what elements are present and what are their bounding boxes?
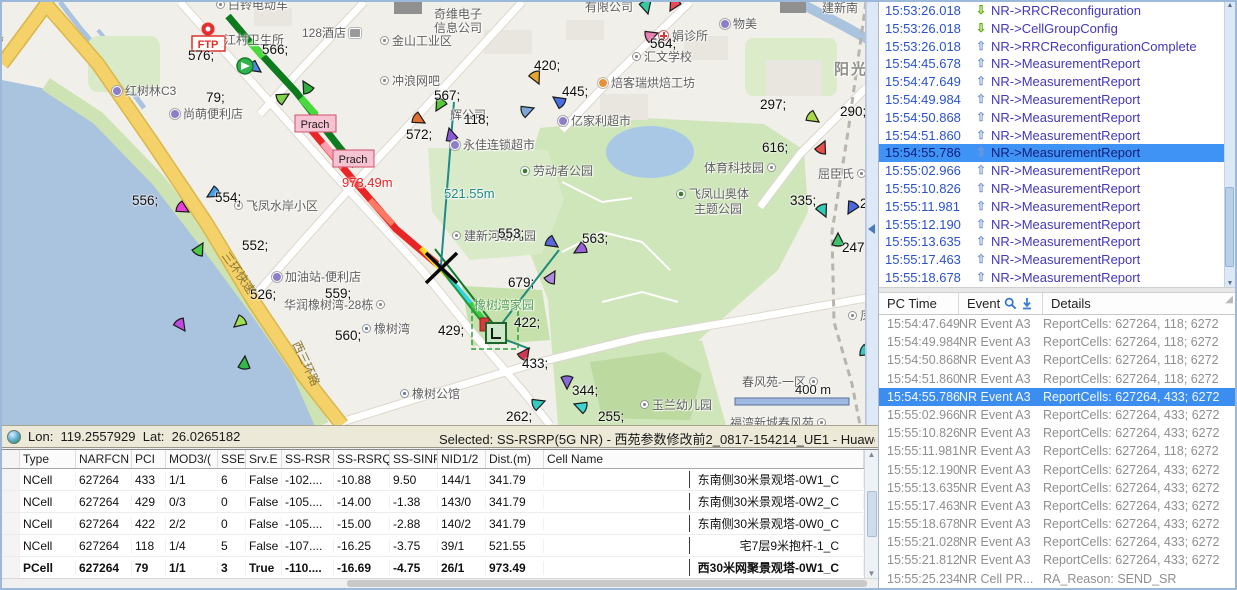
message-time: 15:54:55.786 <box>885 144 971 162</box>
cell-table-row[interactable]: PCell 627264 79 1/1 3 True -110.... -16.… <box>2 557 864 579</box>
message-time: 15:54:45.678 <box>885 55 971 73</box>
direction-arrow-icon <box>971 38 991 56</box>
pond <box>606 126 694 178</box>
event-time: 15:54:55.786 <box>879 388 959 406</box>
cell-type: NCell <box>20 539 76 553</box>
message-name: NR->MeasurementReport <box>991 198 1140 216</box>
scroll-up-icon[interactable]: ▲ <box>1227 2 1234 9</box>
cell-rsrp: -105.... <box>282 517 334 531</box>
direction-arrow-icon <box>971 198 991 216</box>
cell-rsrp: -102.... <box>282 473 334 487</box>
collapse-arrow-icon[interactable] <box>868 224 875 234</box>
event-time: 15:55:13.635 <box>879 479 959 497</box>
event-type: NR Event A3 <box>959 497 1043 515</box>
row-gutter-header <box>2 450 20 468</box>
event-details: ReportCells: 627264, 433; 6272 <box>1043 424 1236 442</box>
current-position-marker[interactable] <box>486 323 506 343</box>
signaling-message-row[interactable]: 15:55:17.463 NR->MeasurementReport <box>879 251 1225 269</box>
signaling-message-row[interactable]: 15:54:47.649 NR->MeasurementReport <box>879 73 1225 91</box>
col-details[interactable]: Details <box>1043 293 1236 314</box>
col-ss-rsrp[interactable]: SS-RSR <box>282 450 334 468</box>
direction-arrow-icon <box>971 109 991 127</box>
event-details: RA_Reason: SEND_SR <box>1043 570 1236 588</box>
message-name: NR->RRCReconfiguration <box>991 2 1141 20</box>
event-type: NR Event A3 <box>959 315 1043 333</box>
cell-type: NCell <box>20 473 76 487</box>
event-time: 15:55:11.981 <box>879 442 959 460</box>
direction-arrow-icon <box>971 127 991 145</box>
map-scale-bar <box>735 398 849 405</box>
signaling-message-row[interactable]: 15:54:51.860 NR->MeasurementReport <box>879 127 1225 145</box>
event-time: 15:54:50.868 <box>879 351 959 369</box>
signaling-message-row[interactable]: 15:54:55.786 NR->MeasurementReport <box>879 144 1225 162</box>
map-label-box <box>780 2 806 13</box>
scroll-down-icon[interactable]: ▼ <box>868 569 876 578</box>
prach-label: Prach <box>339 154 368 166</box>
col-mod3[interactable]: MOD3/( <box>166 450 218 468</box>
message-name: NR->MeasurementReport <box>991 216 1140 234</box>
col-pc-time[interactable]: PC Time <box>879 293 959 314</box>
event-time: 15:54:49.984 <box>879 333 959 351</box>
cell-ssb: 5 <box>218 539 246 553</box>
cell-mod3: 2/2 <box>166 517 218 531</box>
event-time: 15:55:10.826 <box>879 424 959 442</box>
event-row[interactable]: 15:55:10.826 NR Event A3 ReportCells: 62… <box>879 424 1236 442</box>
row-gutter <box>2 469 20 490</box>
cell-mod3: 1/4 <box>166 539 218 553</box>
cell-sinr: -3.75 <box>390 539 438 553</box>
event-details: ReportCells: 627264, 118; 6272 <box>1043 370 1236 388</box>
cell-name: 东南侧30米景观塔-0W0_C <box>544 515 864 532</box>
event-time: 15:54:47.649 <box>879 315 959 333</box>
cell-type: NCell <box>20 517 76 531</box>
selected-metric-info: Selected: SS-RSRP(5G NR) - 西苑参数修改前2_0817… <box>439 429 875 448</box>
signaling-message-row[interactable]: 15:54:49.984 NR->MeasurementReport <box>879 91 1225 109</box>
direction-arrow-icon <box>971 162 991 180</box>
col-ssb[interactable]: SSE <box>218 450 246 468</box>
row-gutter <box>2 491 20 512</box>
cell-pci: 422 <box>132 517 166 531</box>
message-name: NR->MeasurementReport <box>991 144 1140 162</box>
cell-dist: 341.79 <box>486 473 544 487</box>
cell-dist: 341.79 <box>486 517 544 531</box>
signaling-message-row[interactable]: 15:55:13.635 NR->MeasurementReport <box>879 233 1225 251</box>
cell-pci: 429 <box>132 495 166 509</box>
direction-arrow-icon <box>971 20 991 38</box>
message-time: 15:54:50.868 <box>885 109 971 127</box>
col-type[interactable]: Type <box>20 450 76 468</box>
cell-sinr: 9.50 <box>390 473 438 487</box>
direction-arrow-icon <box>971 269 991 287</box>
message-time: 15:55:12.190 <box>885 216 971 234</box>
cell-dist: 521.55 <box>486 539 544 553</box>
row-gutter <box>2 513 20 534</box>
cell-rsrq: -10.88 <box>334 473 390 487</box>
drive-test-app-window: FTP Prach Prach 白铃电动车江村卫生所128酒店金山工业区奇维电子… <box>0 0 1237 590</box>
scrollbar-thumb[interactable] <box>867 491 877 537</box>
col-dist[interactable]: Dist.(m) <box>486 450 544 468</box>
event-time: 15:55:18.678 <box>879 515 959 533</box>
event-row[interactable]: 15:54:51.860 NR Event A3 ReportCells: 62… <box>879 370 1236 388</box>
cell-nid: 26/1 <box>438 561 486 575</box>
signaling-message-row[interactable]: 15:55:11.981 NR->MeasurementReport <box>879 198 1225 216</box>
map-status-bar: Lon: 119.2557929 Lat: 26.0265182 Selecte… <box>2 425 878 448</box>
cell-table-row[interactable]: NCell 627264 118 1/4 5 False -107.... -1… <box>2 535 864 557</box>
message-name: NR->MeasurementReport <box>991 251 1140 269</box>
cell-measurement-table[interactable]: Type NARFCN PCI MOD3/( SSE Srv.E SS-RSR … <box>2 449 878 588</box>
message-time: 15:54:49.984 <box>885 91 971 109</box>
cell-mod3: 0/3 <box>166 495 218 509</box>
events-table-header: PC Time Event Details <box>879 293 1236 315</box>
signaling-message-row[interactable]: 15:54:50.868 NR->MeasurementReport <box>879 109 1225 127</box>
signaling-message-list[interactable]: 15:53:26.018 NR->RRCReconfiguration 15:5… <box>879 2 1225 287</box>
message-name: NR->MeasurementReport <box>991 233 1140 251</box>
col-srv-ev[interactable]: Srv.E <box>246 450 282 468</box>
cell-rsrq: -16.69 <box>334 561 390 575</box>
event-time: 15:55:25.234 <box>879 570 959 588</box>
message-name: NR->MeasurementReport <box>991 162 1140 180</box>
vertical-splitter[interactable] <box>866 2 878 425</box>
message-time: 15:54:47.649 <box>885 73 971 91</box>
cell-narfcn: 627264 <box>76 539 132 553</box>
signaling-message-row[interactable]: 15:53:26.018 NR->RRCReconfigurationCompl… <box>879 38 1225 56</box>
event-type: NR Event A3 <box>959 388 1043 406</box>
cell-rsrp: -105.... <box>282 495 334 509</box>
col-ss-rsrq[interactable]: SS-RSRQ <box>334 450 390 468</box>
event-type: NR Event A3 <box>959 551 1043 569</box>
message-name: NR->MeasurementReport <box>991 109 1140 127</box>
event-details: ReportCells: 627264, 118; 6272 <box>1043 442 1236 460</box>
event-time: 15:55:21.028 <box>879 533 959 551</box>
event-row[interactable]: 15:54:50.868 NR Event A3 ReportCells: 62… <box>879 351 1236 369</box>
signaling-message-row[interactable]: 15:54:45.678 NR->MeasurementReport <box>879 55 1225 73</box>
cell-rsrp: -110.... <box>282 561 334 575</box>
event-time: 15:55:12.190 <box>879 461 959 479</box>
direction-arrow-icon <box>971 55 991 73</box>
cell-type: PCell <box>20 561 76 575</box>
right-panel: 15:53:26.018 NR->RRCReconfiguration 15:5… <box>878 2 1235 588</box>
filter-download-icon[interactable] <box>1021 297 1033 310</box>
event-type: NR Event A3 <box>959 351 1043 369</box>
event-type: NR Event A3 <box>959 424 1043 442</box>
cell-rsrp: -107.... <box>282 539 334 553</box>
prach-label: Prach <box>301 119 330 131</box>
ftp-pin-dot <box>206 27 211 32</box>
event-details: ReportCells: 627264, 118; 6272 <box>1043 333 1236 351</box>
cell-pci: 433 <box>132 473 166 487</box>
ftp-label: FTP <box>198 39 219 51</box>
event-time: 15:55:17.463 <box>879 497 959 515</box>
direction-arrow-icon <box>971 216 991 234</box>
message-name: NR->MeasurementReport <box>991 180 1140 198</box>
event-type: NR Event A3 <box>959 533 1043 551</box>
message-name: NR->CellGroupConfig <box>991 20 1118 38</box>
events-panel[interactable]: PC Time Event Details 15:54:47.649 NR Ev… <box>879 293 1236 588</box>
cell-nid: 39/1 <box>438 539 486 553</box>
map-canvas[interactable]: FTP Prach Prach <box>2 2 866 425</box>
message-time: 15:55:18.678 <box>885 269 971 287</box>
row-gutter <box>2 535 20 556</box>
event-time: 15:54:51.860 <box>879 370 959 388</box>
cell-narfcn: 627264 <box>76 561 132 575</box>
cell-rsrq: -16.25 <box>334 539 390 553</box>
message-time: 15:53:26.018 <box>885 38 971 56</box>
event-row[interactable]: 15:55:12.190 NR Event A3 ReportCells: 62… <box>879 461 1236 479</box>
message-name: NR->MeasurementReport <box>991 269 1140 287</box>
cell-sinr: -4.75 <box>390 561 438 575</box>
event-details: ReportCells: 627264, 118; 6272 <box>1043 315 1236 333</box>
event-type: NR Event A3 <box>959 515 1043 533</box>
map-label-box <box>394 2 422 14</box>
cell-nid: 140/2 <box>438 517 486 531</box>
event-details: ReportCells: 627264, 433; 6272 <box>1043 497 1236 515</box>
event-details: ReportCells: 627264, 433; 6272 <box>1043 533 1236 551</box>
cell-rsrq: -14.00 <box>334 495 390 509</box>
event-type: NR Event A3 <box>959 333 1043 351</box>
cell-sinr: -1.38 <box>390 495 438 509</box>
message-time: 15:55:13.635 <box>885 233 971 251</box>
scroll-up-icon[interactable]: ▲ <box>868 450 876 459</box>
cell-table-row[interactable]: NCell 627264 422 2/2 0 False -105.... -1… <box>2 513 864 535</box>
cell-mod3: 1/1 <box>166 561 218 575</box>
event-details: ReportCells: 627264, 433; 6272 <box>1043 551 1236 569</box>
cell-name: 东南侧30米景观塔-0W2_C <box>544 493 864 510</box>
direction-arrow-icon <box>971 73 991 91</box>
event-details: ReportCells: 627264, 433; 6272 <box>1043 515 1236 533</box>
event-type: NR Event A3 <box>959 442 1043 460</box>
event-time: 15:55:21.812 <box>879 551 959 569</box>
cell-type: NCell <box>20 495 76 509</box>
col-cell-name[interactable]: Cell Name <box>544 450 864 468</box>
table-vertical-scrollbar[interactable]: ▲▼ <box>864 450 878 578</box>
cell-table-row[interactable]: NCell 627264 429 0/3 0 False -105.... -1… <box>2 491 864 513</box>
cell-dist: 973.49 <box>486 561 544 575</box>
event-row[interactable]: 15:55:25.234 NR Cell PR... RA_Reason: SE… <box>879 570 1236 588</box>
cell-narfcn: 627264 <box>76 517 132 531</box>
scroll-down-icon[interactable]: ▼ <box>1227 280 1234 287</box>
cell-narfcn: 627264 <box>76 495 132 509</box>
signaling-message-row[interactable]: 15:53:26.018 NR->CellGroupConfig <box>879 20 1225 38</box>
cell-ssb: 0 <box>218 517 246 531</box>
signaling-message-row[interactable]: 15:55:18.678 NR->MeasurementReport <box>879 269 1225 287</box>
cell-srv-ev: False <box>246 517 282 531</box>
message-time: 15:55:17.463 <box>885 251 971 269</box>
cell-rsrq: -15.00 <box>334 517 390 531</box>
event-row[interactable]: 15:55:13.635 NR Event A3 ReportCells: 62… <box>879 479 1236 497</box>
direction-arrow-icon <box>971 233 991 251</box>
message-time: 15:54:51.860 <box>885 127 971 145</box>
cell-mod3: 1/1 <box>166 473 218 487</box>
cell-narfcn: 627264 <box>76 473 132 487</box>
cell-name: 宅7层9米抱杆-1_C <box>544 537 864 554</box>
resize-grip-icon: ◢ <box>1225 294 1233 305</box>
event-details: ReportCells: 627264, 433; 6272 <box>1043 388 1236 406</box>
cell-srv-ev: False <box>246 539 282 553</box>
message-name: NR->MeasurementReport <box>991 73 1140 91</box>
event-type: NR Event A3 <box>959 479 1043 497</box>
message-time: 15:53:26.018 <box>885 20 971 38</box>
map-panel[interactable]: FTP Prach Prach 白铃电动车江村卫生所128酒店金山工业区奇维电子… <box>2 2 866 425</box>
event-row[interactable]: 15:55:11.981 NR Event A3 ReportCells: 62… <box>879 442 1236 460</box>
direction-arrow-icon <box>971 91 991 109</box>
cell-ssb: 6 <box>218 473 246 487</box>
col-nid[interactable]: NID1/2 <box>438 450 486 468</box>
message-time: 15:53:26.018 <box>885 2 971 20</box>
cell-table-header: Type NARFCN PCI MOD3/( SSE Srv.E SS-RSR … <box>2 450 864 469</box>
event-row[interactable]: 15:55:18.678 NR Event A3 ReportCells: 62… <box>879 515 1236 533</box>
signaling-message-row[interactable]: 15:55:10.826 NR->MeasurementReport <box>879 180 1225 198</box>
cell-name: 西30米网聚景观塔-0W1_C <box>544 559 864 576</box>
event-row[interactable]: 15:55:21.812 NR Event A3 ReportCells: 62… <box>879 551 1236 569</box>
event-details: ReportCells: 627264, 433; 6272 <box>1043 406 1236 424</box>
basemap <box>2 2 866 425</box>
signaling-message-row[interactable]: 15:55:12.190 NR->MeasurementReport <box>879 216 1225 234</box>
event-type: NR Event A3 <box>959 370 1043 388</box>
message-name: NR->RRCReconfigurationComplete <box>991 38 1197 56</box>
cell-srv-ev: False <box>246 473 282 487</box>
message-time: 15:55:10.826 <box>885 180 971 198</box>
col-ss-sinr[interactable]: SS-SINR <box>390 450 438 468</box>
event-details: ReportCells: 627264, 433; 6272 <box>1043 479 1236 497</box>
event-type: NR Event A3 <box>959 406 1043 424</box>
event-row[interactable]: 15:54:47.649 NR Event A3 ReportCells: 62… <box>879 315 1236 333</box>
message-name: NR->MeasurementReport <box>991 55 1140 73</box>
message-time: 15:55:02.966 <box>885 162 971 180</box>
event-type: NR Event A3 <box>959 461 1043 479</box>
event-row[interactable]: 15:55:17.463 NR Event A3 ReportCells: 62… <box>879 497 1236 515</box>
direction-arrow-icon <box>971 144 991 162</box>
event-row[interactable]: 15:55:02.966 NR Event A3 ReportCells: 62… <box>879 406 1236 424</box>
event-details: ReportCells: 627264, 433; 6272 <box>1043 461 1236 479</box>
direction-arrow-icon <box>971 2 991 20</box>
col-pci[interactable]: PCI <box>132 450 166 468</box>
direction-arrow-icon <box>971 180 991 198</box>
cell-table-row[interactable]: NCell 627264 433 1/1 6 False -102.... -1… <box>2 469 864 491</box>
signaling-message-row[interactable]: 15:53:26.018 NR->RRCReconfiguration <box>879 2 1225 20</box>
col-narfcn[interactable]: NARFCN <box>76 450 132 468</box>
cell-nid: 143/0 <box>438 495 486 509</box>
row-gutter <box>2 557 20 578</box>
table-horizontal-scrollbar[interactable] <box>2 578 878 588</box>
direction-arrow-icon <box>971 251 991 269</box>
cell-dist: 341.79 <box>486 495 544 509</box>
cell-sinr: -2.88 <box>390 517 438 531</box>
message-name: NR->MeasurementReport <box>991 127 1140 145</box>
signaling-message-row[interactable]: 15:55:02.966 NR->MeasurementReport <box>879 162 1225 180</box>
scrollbar-thumb[interactable] <box>1225 187 1234 267</box>
cell-ssb: 0 <box>218 495 246 509</box>
event-row[interactable]: 15:54:49.984 NR Event A3 ReportCells: 62… <box>879 333 1236 351</box>
cell-pci: 79 <box>132 561 166 575</box>
cell-nid: 144/1 <box>438 473 486 487</box>
cell-srv-ev: False <box>246 495 282 509</box>
search-icon[interactable] <box>1004 297 1017 310</box>
event-type: NR Cell PR... <box>959 570 1043 588</box>
lonlat-readout: Lon: 119.2557929 Lat: 26.0265182 <box>28 429 240 444</box>
cell-pci: 118 <box>132 539 166 553</box>
event-row[interactable]: 15:55:21.028 NR Event A3 ReportCells: 62… <box>879 533 1236 551</box>
cell-ssb: 3 <box>218 561 246 575</box>
cell-name: 东南侧30米景观塔-0W1_C <box>544 471 864 488</box>
event-time: 15:55:02.966 <box>879 406 959 424</box>
event-details: ReportCells: 627264, 118; 6272 <box>1043 351 1236 369</box>
scrollbar-thumb[interactable] <box>347 580 867 587</box>
globe-icon <box>7 430 21 444</box>
message-time: 15:55:11.981 <box>885 198 971 216</box>
col-event[interactable]: Event <box>959 293 1043 314</box>
event-row[interactable]: 15:54:55.786 NR Event A3 ReportCells: 62… <box>879 388 1236 406</box>
message-name: NR->MeasurementReport <box>991 91 1140 109</box>
cell-srv-ev: True <box>246 561 282 575</box>
